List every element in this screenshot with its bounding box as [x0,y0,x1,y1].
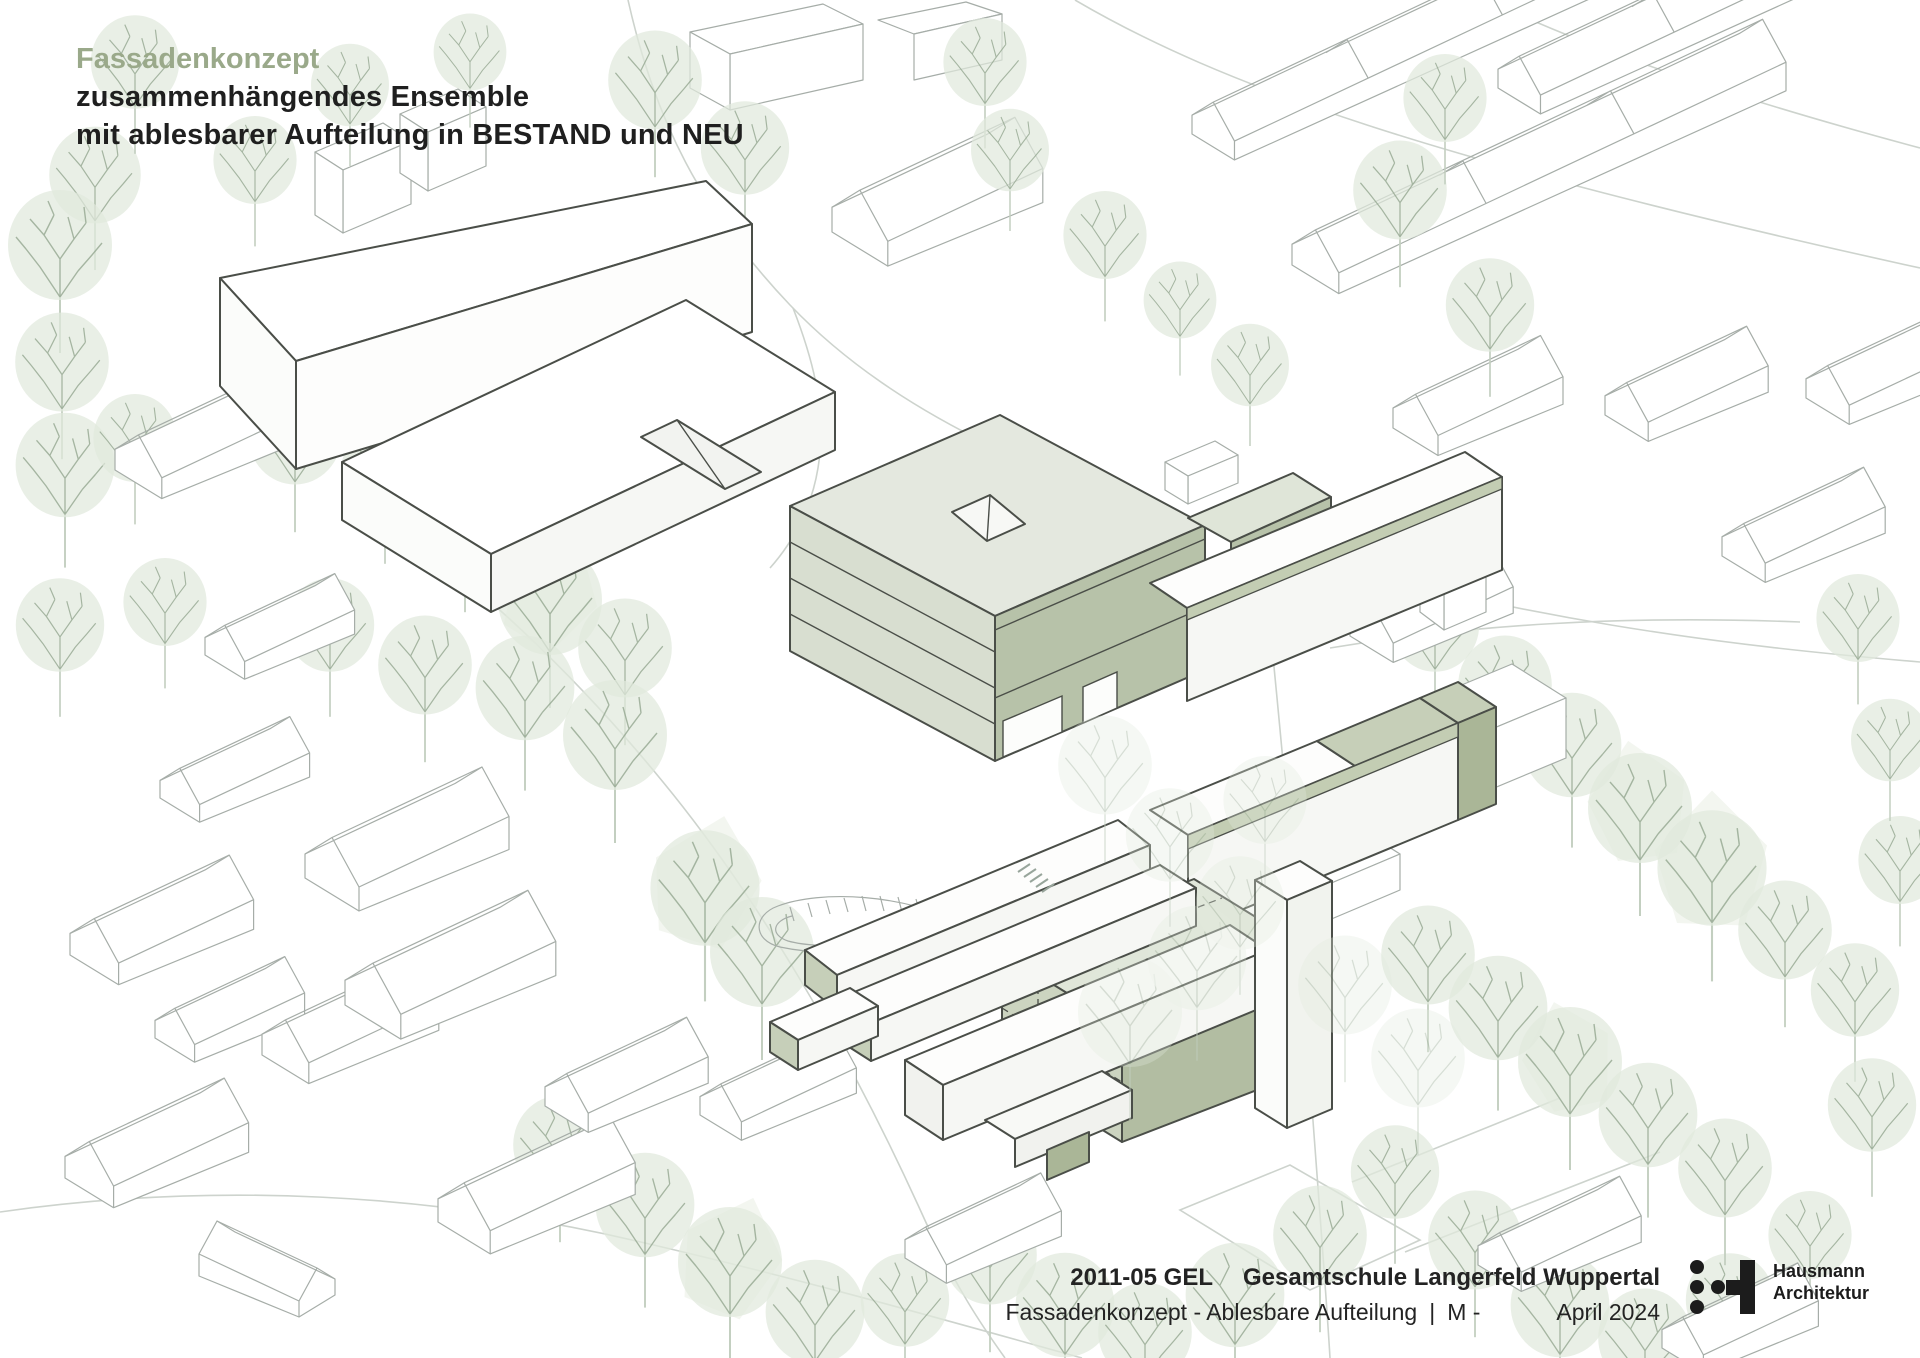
context-house [65,1078,249,1208]
sheet-subtitle-line2: mit ablesbarer Aufteilung in BESTAND und… [76,116,744,154]
spacer [1492,1299,1544,1326]
context-house [70,855,254,985]
date-label: April 2024 [1556,1299,1660,1326]
context-house [1605,326,1768,441]
hausmann-logo-icon [1688,1254,1760,1318]
office-name: Hausmann Architektur [1773,1261,1869,1304]
new-main-building [790,415,1205,761]
context-house [1722,467,1885,582]
title-block-line1: 2011-05 GEL Gesamtschule Langerfeld Wupp… [1005,1264,1660,1292]
separator: | [1429,1299,1435,1326]
sheet-heading: Fassadenkonzept zusammenhängendes Ensemb… [76,40,744,154]
office-name-line2: Architektur [1773,1283,1869,1305]
scale-label: M - [1447,1299,1480,1326]
context-house [1806,309,1920,424]
drawing-title: Fassadenkonzept - Ablesbare Aufteilung [1005,1299,1417,1326]
facade-concept-sheet: Fassadenkonzept zusammenhängendes Ensemb… [0,0,1920,1358]
context-house [1393,336,1563,456]
project-code: 2011-05 GEL [1070,1264,1213,1292]
office-name-line1: Hausmann [1773,1261,1869,1283]
title-block: 2011-05 GEL Gesamtschule Langerfeld Wupp… [1005,1264,1660,1326]
office-logo: Hausmann Architektur [1688,1254,1869,1318]
context-house [345,890,556,1039]
context-house [545,1017,708,1132]
sheet-subtitle-line1: zusammenhängendes Ensemble [76,78,744,116]
sheet-title: Fassadenkonzept [76,40,744,78]
context-house [305,767,509,911]
title-block-line2: Fassadenkonzept - Ablesbare Aufteilung |… [1005,1299,1660,1326]
context-house [199,1221,335,1317]
site-axonometric-drawing [0,0,1920,1358]
context-house [160,717,310,823]
project-name: Gesamtschule Langerfeld Wuppertal [1243,1264,1660,1292]
